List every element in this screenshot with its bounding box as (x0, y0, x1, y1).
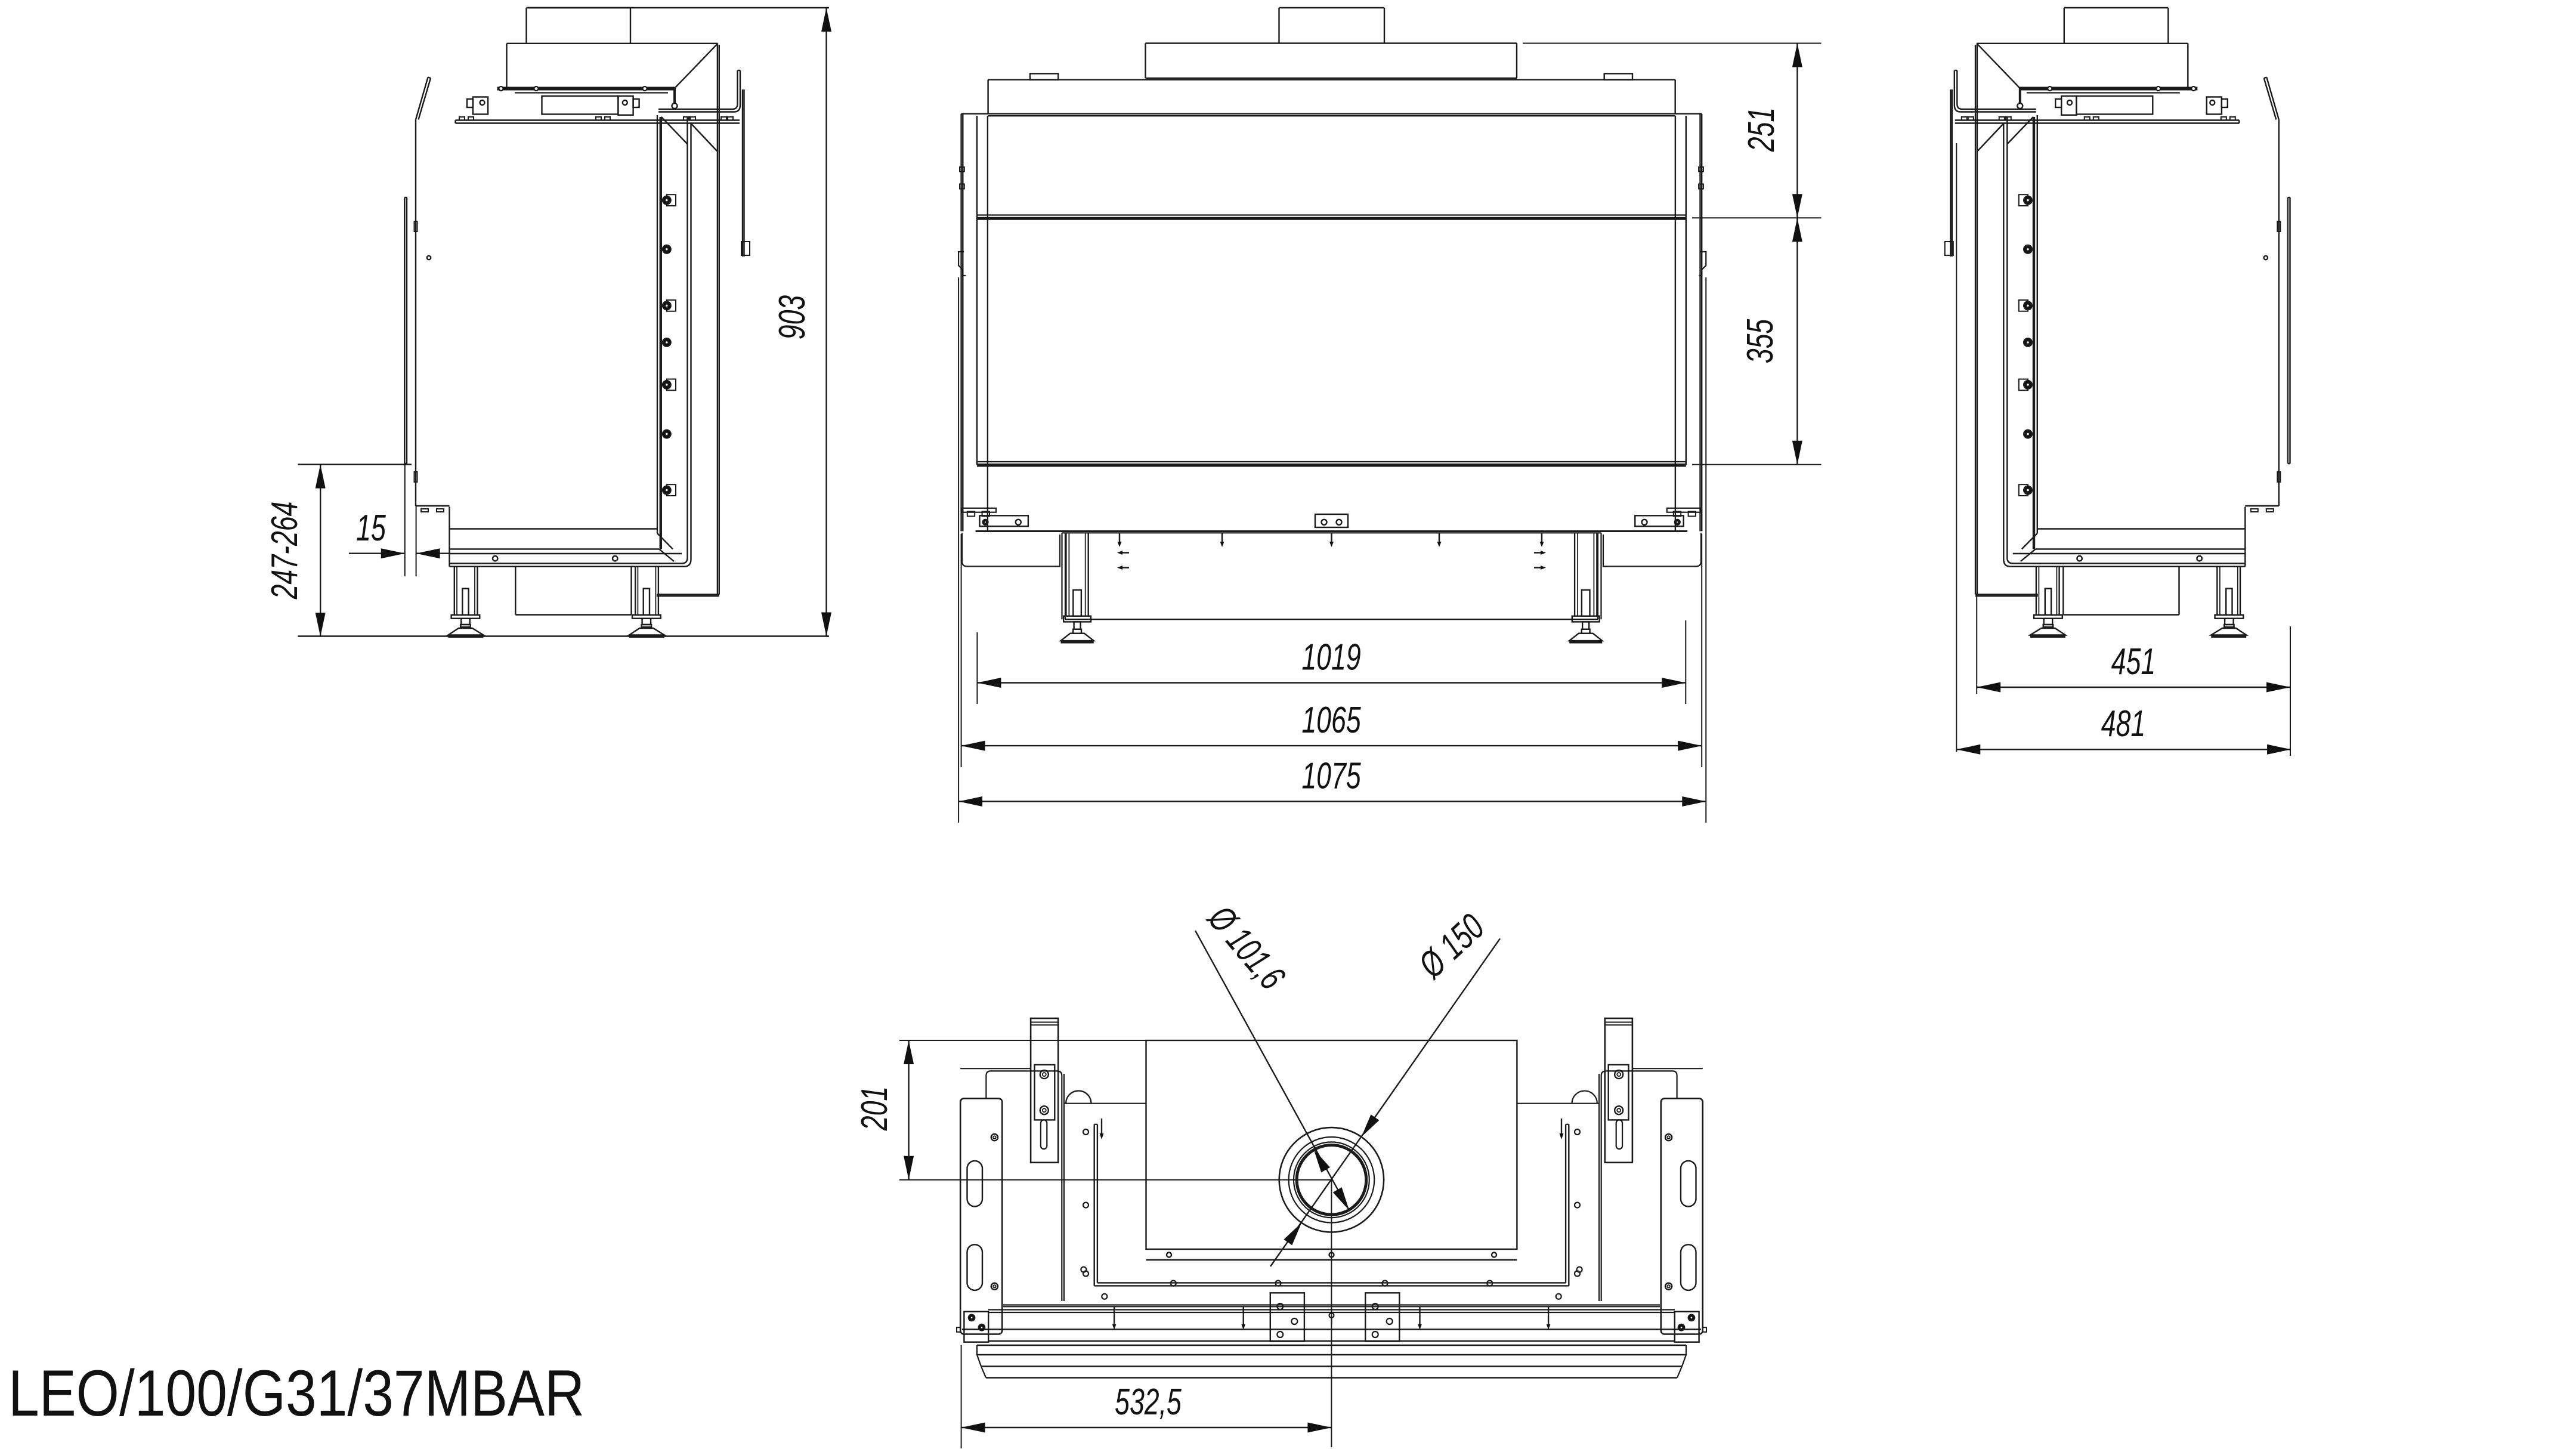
svg-text:1075: 1075 (1301, 755, 1361, 796)
svg-text:201: 201 (854, 1086, 895, 1131)
svg-text:15: 15 (356, 508, 386, 549)
svg-text:355: 355 (1740, 319, 1781, 363)
svg-text:1019: 1019 (1301, 637, 1360, 678)
svg-text:1065: 1065 (1301, 700, 1361, 741)
svg-text:251: 251 (1741, 107, 1782, 152)
svg-text:451: 451 (2111, 641, 2156, 682)
svg-text:532,5: 532,5 (1115, 1382, 1182, 1423)
svg-text:481: 481 (2101, 703, 2145, 744)
svg-text:903: 903 (772, 295, 813, 339)
svg-text:247-264: 247-264 (264, 502, 305, 600)
svg-text:LEO/100/G31/37MBAR: LEO/100/G31/37MBAR (8, 1357, 585, 1430)
